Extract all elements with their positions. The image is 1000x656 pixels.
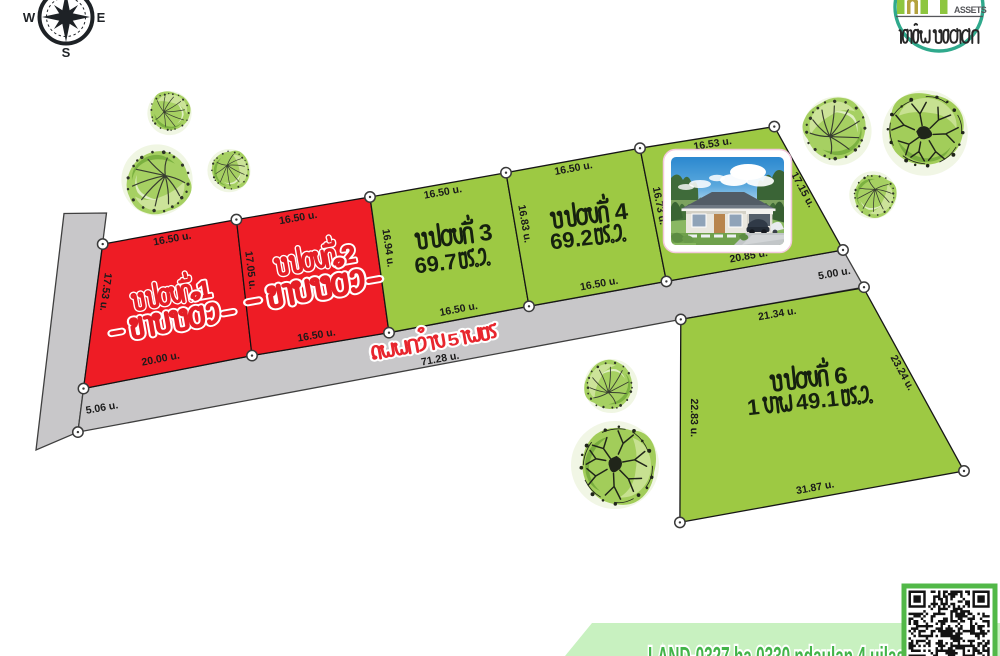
svg-text:ASSETS: ASSETS xyxy=(954,5,987,15)
svg-text:22.83 u.: 22.83 u. xyxy=(688,399,700,438)
svg-text:S: S xyxy=(62,45,71,60)
svg-text:LAND-0327 ha 0330 ndaulan 4 ui: LAND-0327 ha 0330 ndaulan 4 uilas xyxy=(648,641,905,656)
svg-text:69.7: 69.7 xyxy=(413,248,459,278)
svg-text:49.1: 49.1 xyxy=(795,386,840,415)
svg-text:69.2: 69.2 xyxy=(549,224,595,254)
svg-text:W: W xyxy=(23,10,36,25)
svg-text:1: 1 xyxy=(746,394,761,420)
svg-text:E: E xyxy=(97,10,106,25)
